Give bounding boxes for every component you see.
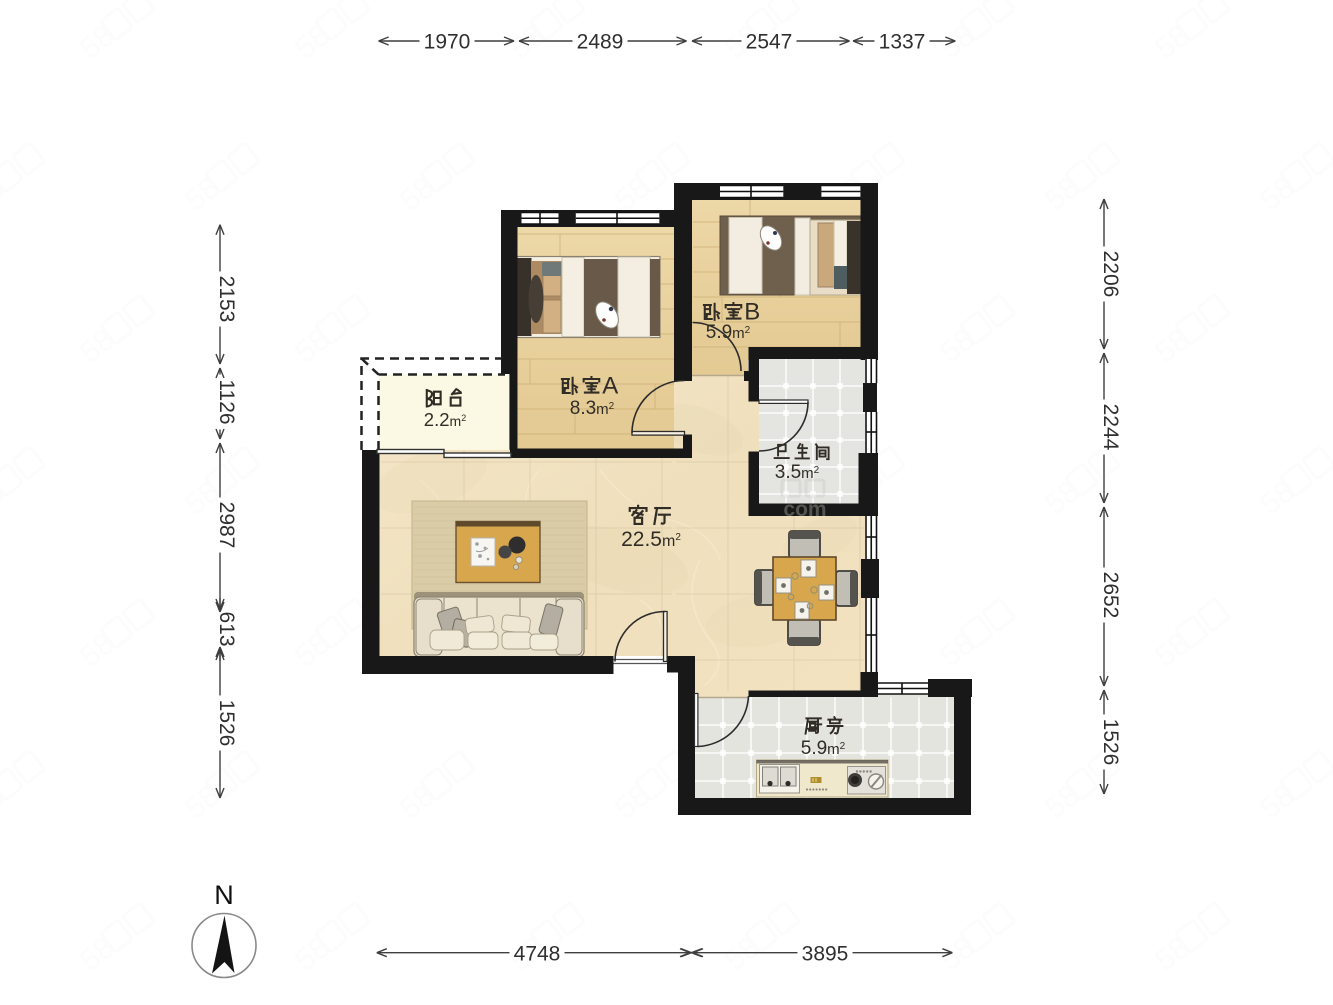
svg-text:2652: 2652	[1099, 572, 1122, 619]
svg-text:1126: 1126	[215, 379, 238, 424]
svg-text:2153: 2153	[215, 276, 238, 323]
svg-text:3895: 3895	[802, 942, 849, 965]
svg-text:com: com	[783, 498, 826, 521]
svg-text:1526: 1526	[1099, 719, 1122, 766]
svg-text:2547: 2547	[746, 31, 793, 54]
svg-text:8.3m2: 8.3m2	[570, 398, 615, 419]
svg-text:1970: 1970	[424, 31, 471, 54]
svg-text:613: 613	[215, 611, 238, 646]
svg-text:2206: 2206	[1099, 251, 1122, 298]
svg-text:N: N	[214, 880, 234, 910]
svg-text:5.9m2: 5.9m2	[801, 738, 846, 759]
svg-text:2.2m2: 2.2m2	[424, 409, 466, 430]
svg-text:2244: 2244	[1099, 404, 1122, 451]
svg-text:B: B	[744, 298, 760, 325]
svg-text:2489: 2489	[577, 31, 624, 54]
svg-text:A: A	[602, 372, 618, 399]
svg-text:5.9m2: 5.9m2	[706, 322, 751, 343]
svg-text:1337: 1337	[879, 31, 926, 54]
svg-text:4748: 4748	[514, 942, 561, 965]
svg-text:1526: 1526	[215, 700, 238, 747]
svg-text:2987: 2987	[215, 502, 238, 549]
